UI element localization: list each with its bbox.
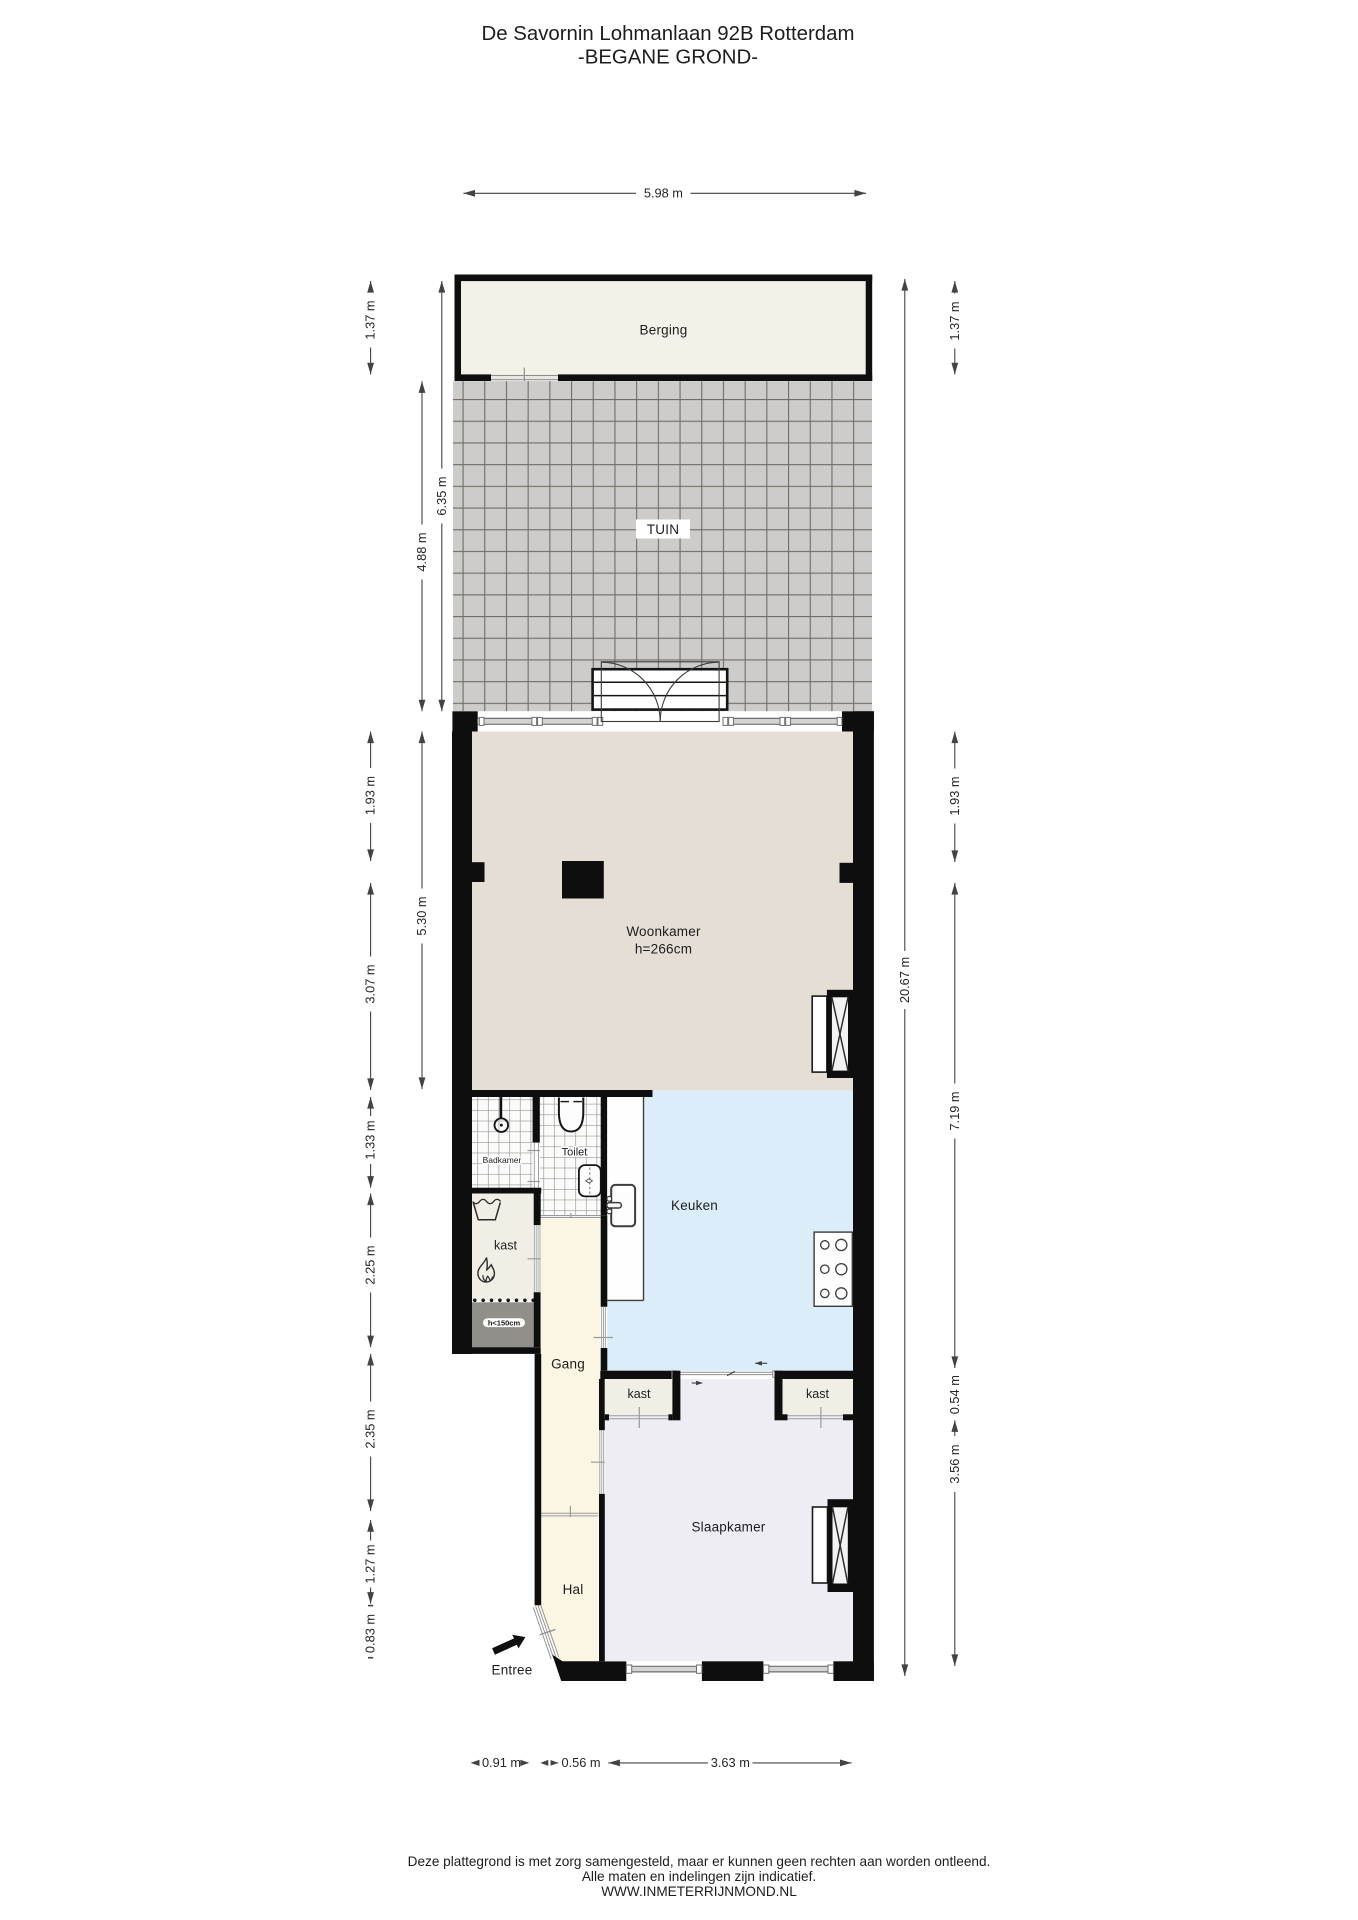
svg-text:h=266cm: h=266cm <box>635 942 692 957</box>
svg-text:1.93 m: 1.93 m <box>363 776 378 815</box>
svg-text:7.19 m: 7.19 m <box>947 1091 962 1130</box>
svg-text:-BEGANE GROND-: -BEGANE GROND- <box>578 47 758 69</box>
svg-text:5.98 m: 5.98 m <box>644 186 683 201</box>
svg-text:Hal: Hal <box>563 1582 584 1597</box>
svg-text:5.30 m: 5.30 m <box>414 896 429 935</box>
svg-text:Slaapkamer: Slaapkamer <box>691 1520 765 1535</box>
svg-text:Berging: Berging <box>640 323 688 338</box>
svg-text:0.56 m: 0.56 m <box>561 1755 600 1770</box>
svg-text:0.54 m: 0.54 m <box>947 1375 962 1414</box>
svg-text:kast: kast <box>494 1239 517 1253</box>
svg-text:1.33 m: 1.33 m <box>363 1120 378 1159</box>
svg-text:3.07 m: 3.07 m <box>363 964 378 1003</box>
svg-text:Entree: Entree <box>492 1663 533 1678</box>
svg-text:kast: kast <box>628 1387 651 1401</box>
svg-text:1.93 m: 1.93 m <box>947 776 962 815</box>
svg-text:WWW.INMETERRIJNMOND.NL: WWW.INMETERRIJNMOND.NL <box>601 1884 797 1899</box>
svg-text:TUIN: TUIN <box>647 522 679 537</box>
svg-text:Alle maten en indelingen zijn: Alle maten en indelingen zijn indicatief… <box>582 1869 816 1884</box>
svg-text:20.67 m: 20.67 m <box>897 957 912 1003</box>
svg-text:4.88 m: 4.88 m <box>414 532 429 571</box>
svg-text:3.56 m: 3.56 m <box>947 1444 962 1483</box>
svg-text:1.27 m: 1.27 m <box>363 1544 378 1583</box>
svg-text:Keuken: Keuken <box>671 1198 718 1213</box>
svg-text:Badkamer: Badkamer <box>483 1155 522 1165</box>
svg-text:3.63 m: 3.63 m <box>711 1755 750 1770</box>
svg-text:De Savornin Lohmanlaan 92B Rot: De Savornin Lohmanlaan 92B Rotterdam <box>482 23 855 45</box>
svg-text:1.37 m: 1.37 m <box>363 300 378 339</box>
svg-text:Toilet: Toilet <box>562 1146 588 1158</box>
svg-text:1.37 m: 1.37 m <box>947 301 962 340</box>
svg-text:Woonkamer: Woonkamer <box>626 924 701 939</box>
svg-text:2.35 m: 2.35 m <box>363 1409 378 1448</box>
svg-text:Gang: Gang <box>551 1357 585 1372</box>
svg-text:6.35 m: 6.35 m <box>434 476 449 515</box>
svg-text:0.83 m: 0.83 m <box>363 1614 378 1653</box>
svg-text:Deze plattegrond is met zorg s: Deze plattegrond is met zorg samengestel… <box>408 1854 991 1869</box>
svg-text:0.91 m: 0.91 m <box>482 1755 521 1770</box>
svg-text:2.25 m: 2.25 m <box>363 1245 378 1284</box>
svg-text:kast: kast <box>806 1387 829 1401</box>
svg-text:h<150cm: h<150cm <box>488 1319 521 1328</box>
